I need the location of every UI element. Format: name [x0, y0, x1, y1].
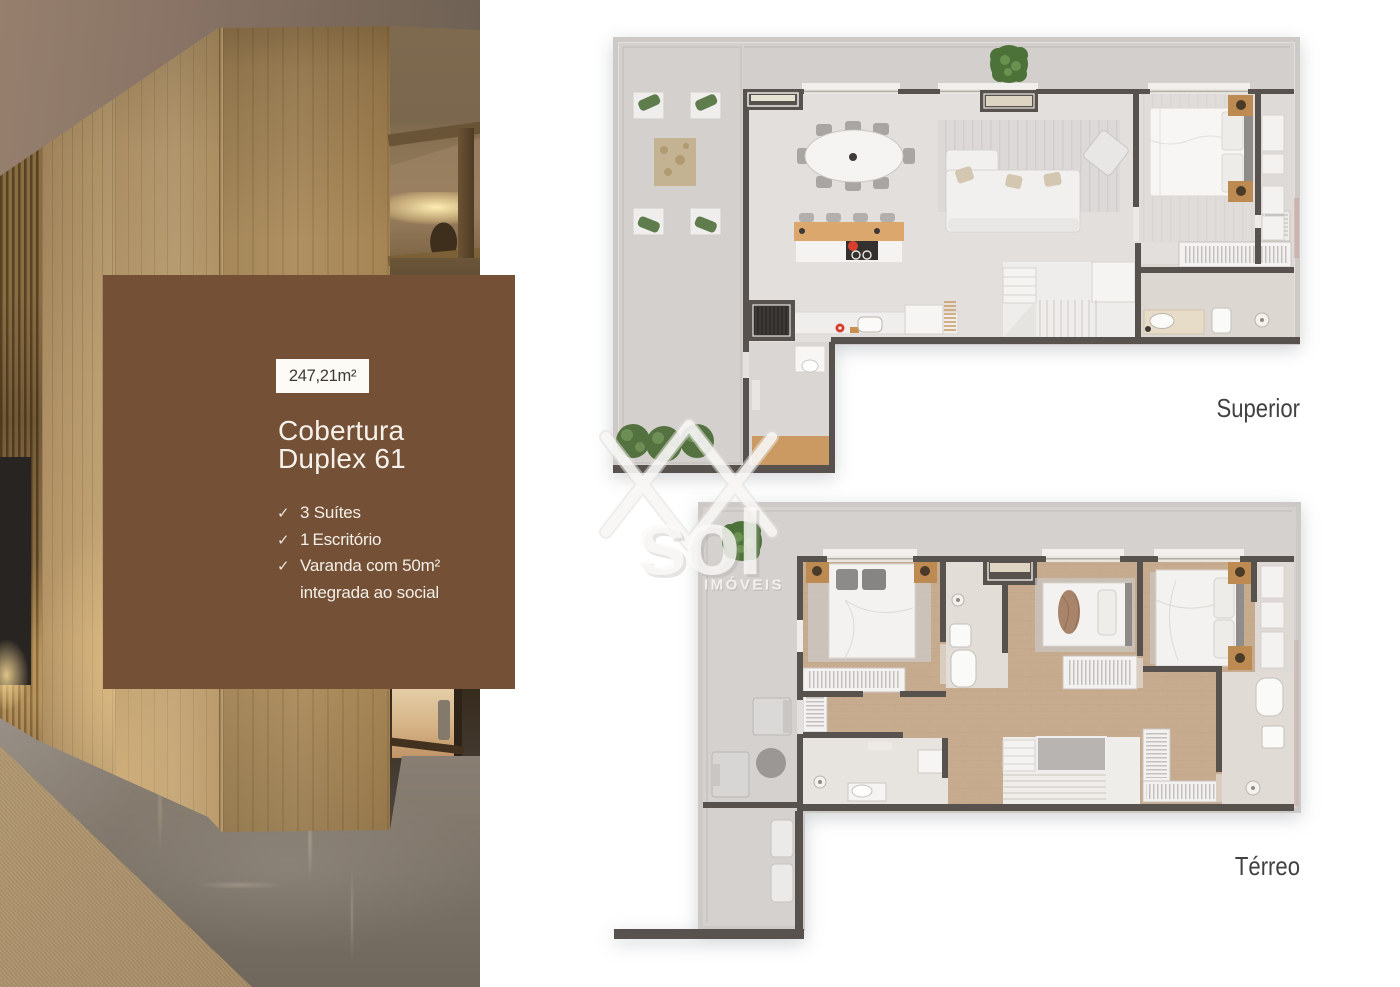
svg-text:IMÓVEIS: IMÓVEIS — [704, 576, 784, 594]
